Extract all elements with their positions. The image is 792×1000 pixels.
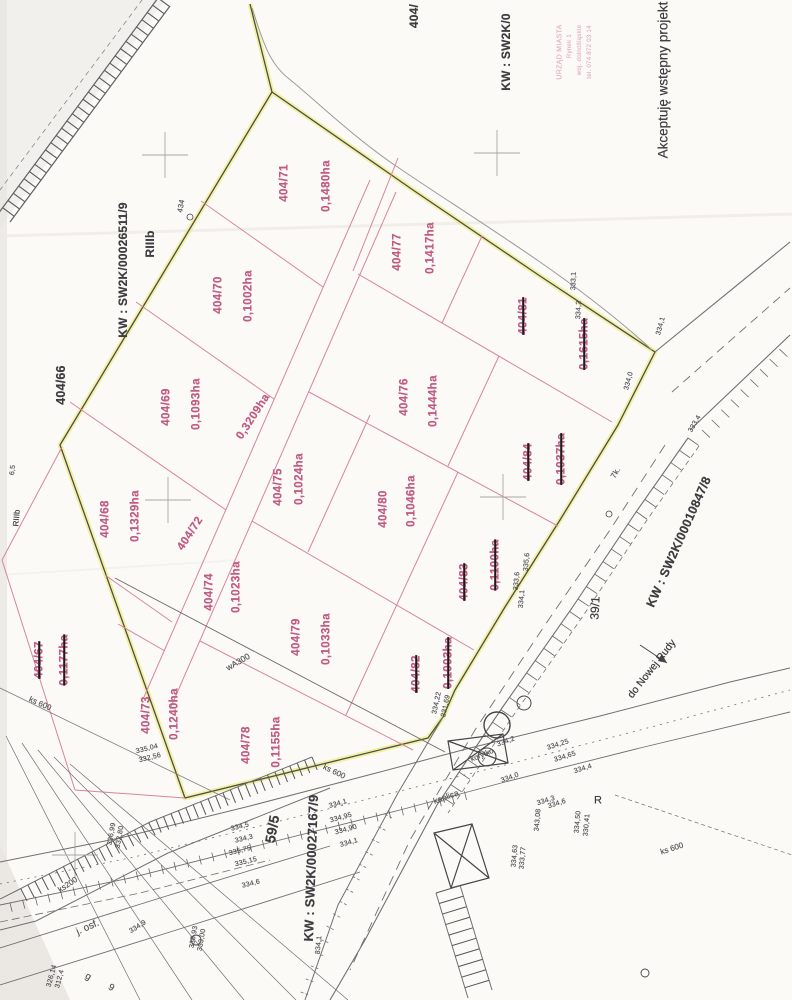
map-drawing [0, 0, 792, 1000]
map-scan-page: 404/710,1480ha404/770,1417ha404/700,1002… [0, 0, 792, 1000]
scan-shading [0, 0, 792, 1000]
